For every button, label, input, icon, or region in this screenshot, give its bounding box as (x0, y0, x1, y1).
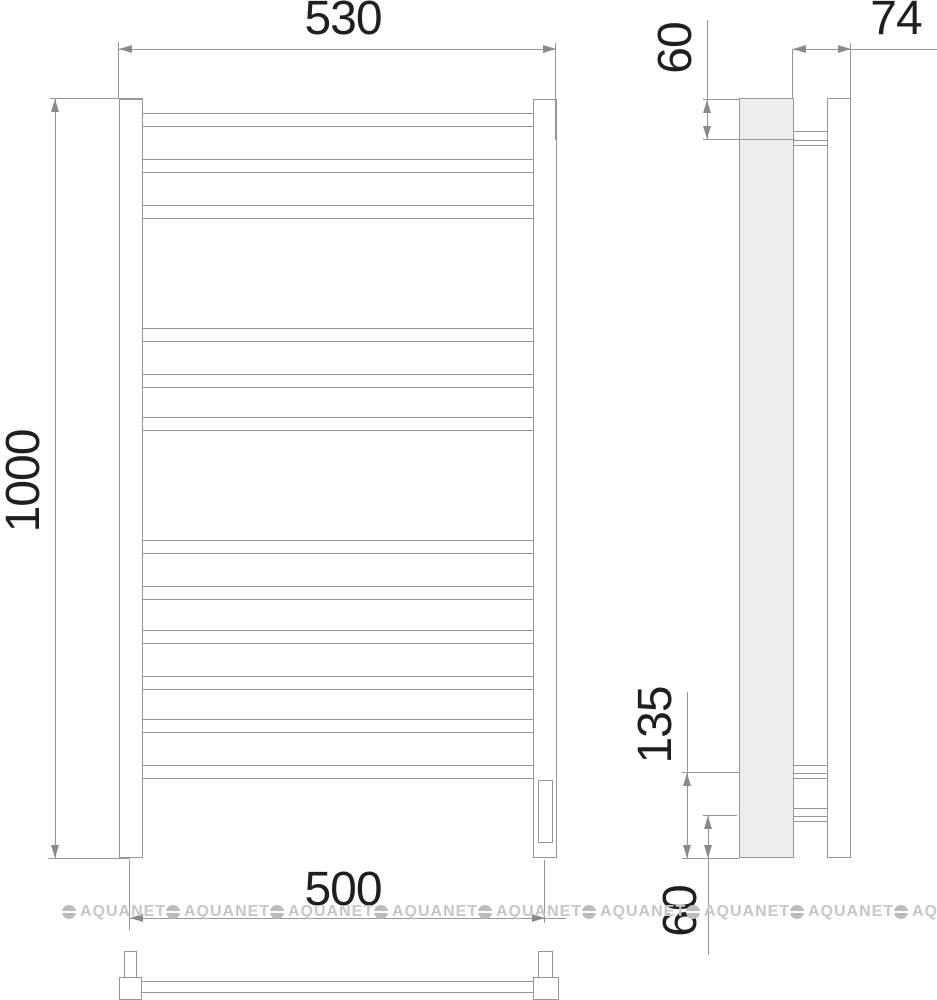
watermark: AQUANET (790, 903, 894, 921)
wall-section (739, 98, 794, 858)
right-post (533, 99, 557, 858)
wall-bracket-bottom (793, 808, 828, 822)
side-post (827, 98, 851, 858)
arrow-icon (704, 816, 712, 829)
rung (142, 205, 534, 219)
dimension-label-1000: 1000 (0, 401, 49, 561)
top-view-bar (142, 981, 534, 993)
dimension-label-530: 530 (303, 0, 383, 43)
arrow-icon (838, 45, 851, 53)
rung (142, 159, 534, 173)
dimension-label-74: 74 (866, 0, 926, 43)
top-view-right-cap (533, 977, 559, 1000)
aquanet-logo-icon (374, 905, 388, 919)
rung (142, 417, 534, 431)
arrow-icon (704, 845, 712, 858)
rung (142, 374, 534, 388)
arrow-icon (703, 100, 711, 113)
heating-element-box (538, 780, 553, 843)
arrow-icon (51, 99, 59, 112)
watermark: AQUANET (582, 903, 686, 921)
aquanet-logo-icon (582, 905, 596, 919)
arrow-icon (703, 126, 711, 139)
aquanet-logo-icon (478, 905, 492, 919)
watermark: AQUANET (166, 903, 270, 921)
top-view-left-stub (124, 951, 137, 978)
wall-bracket-middle (793, 765, 828, 779)
dimension-label-60-top: 60 (651, 0, 701, 128)
rung (142, 719, 534, 733)
aquanet-logo-icon (62, 905, 76, 919)
watermark: AQUANET (270, 903, 374, 921)
wall-bracket-top (793, 131, 828, 146)
rung (142, 328, 534, 342)
aquanet-logo-icon (270, 905, 284, 919)
top-view-right-stub (538, 951, 553, 978)
rung (142, 676, 534, 690)
arrow-icon (793, 45, 806, 53)
rung (142, 586, 534, 600)
rung (142, 630, 534, 644)
left-post (119, 99, 143, 858)
watermark: AQUANET (62, 903, 166, 921)
top-view-left-cap (119, 977, 142, 1000)
rung (142, 540, 534, 554)
aquanet-logo-icon (166, 905, 180, 919)
arrow-icon (51, 845, 59, 858)
aquanet-logo-icon (686, 905, 700, 919)
watermark: AQUANET (894, 903, 937, 921)
aquanet-logo-icon (790, 905, 804, 919)
aquanet-logo-icon (894, 905, 908, 919)
arrow-icon (683, 773, 691, 786)
rung (142, 765, 534, 779)
rung (142, 113, 534, 127)
watermark: AQUANET (686, 903, 790, 921)
arrow-icon (119, 45, 132, 53)
dimension-label-135: 135 (631, 645, 681, 805)
watermark: AQUANET (374, 903, 478, 921)
arrow-icon (543, 45, 556, 53)
technical-drawing-canvas: 530 1000 500 74 60 (0, 0, 937, 1000)
watermark: AQUANET (478, 903, 582, 921)
